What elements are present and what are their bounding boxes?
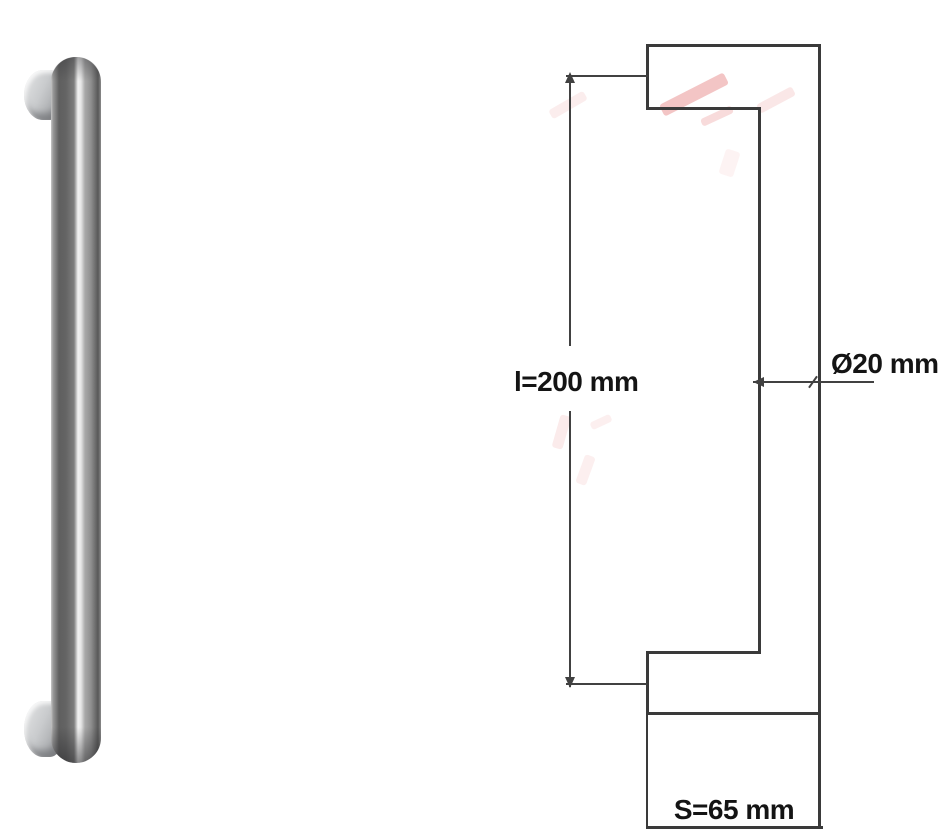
watermark-stroke bbox=[589, 414, 612, 431]
length-extension-line-bottom bbox=[566, 683, 647, 685]
profile-lower-step bbox=[646, 651, 761, 654]
length-dimension-line-upper bbox=[569, 75, 571, 346]
watermark-stroke bbox=[718, 148, 740, 177]
watermark-stroke bbox=[756, 86, 796, 114]
profile-upper-step bbox=[646, 107, 761, 110]
profile-top-edge bbox=[646, 44, 821, 47]
watermark-stroke bbox=[548, 91, 588, 120]
arrow-left-icon bbox=[753, 377, 764, 387]
length-label: l=200 mm bbox=[514, 368, 638, 396]
handle-bar bbox=[51, 57, 101, 763]
profile-bottom-edge bbox=[646, 712, 821, 715]
diameter-label: Ø20 mm bbox=[831, 350, 939, 378]
handle-bar-top-cap-shading bbox=[51, 57, 101, 81]
arrow-down-icon bbox=[565, 677, 575, 688]
length-dimension-line-lower bbox=[569, 411, 571, 687]
spacing-label: S=65 mm bbox=[648, 796, 820, 824]
length-extension-line-top bbox=[566, 75, 648, 77]
arrow-up-icon bbox=[565, 72, 575, 83]
watermark-stroke bbox=[575, 454, 596, 486]
spacing-box-bottom-line bbox=[646, 826, 823, 829]
profile-upper-mount-edge bbox=[646, 44, 649, 110]
handle-bar-bottom-cap-shading bbox=[51, 727, 101, 763]
product-dimension-sheet: l=200 mm Ø20 mm S=65 mm bbox=[0, 0, 940, 834]
